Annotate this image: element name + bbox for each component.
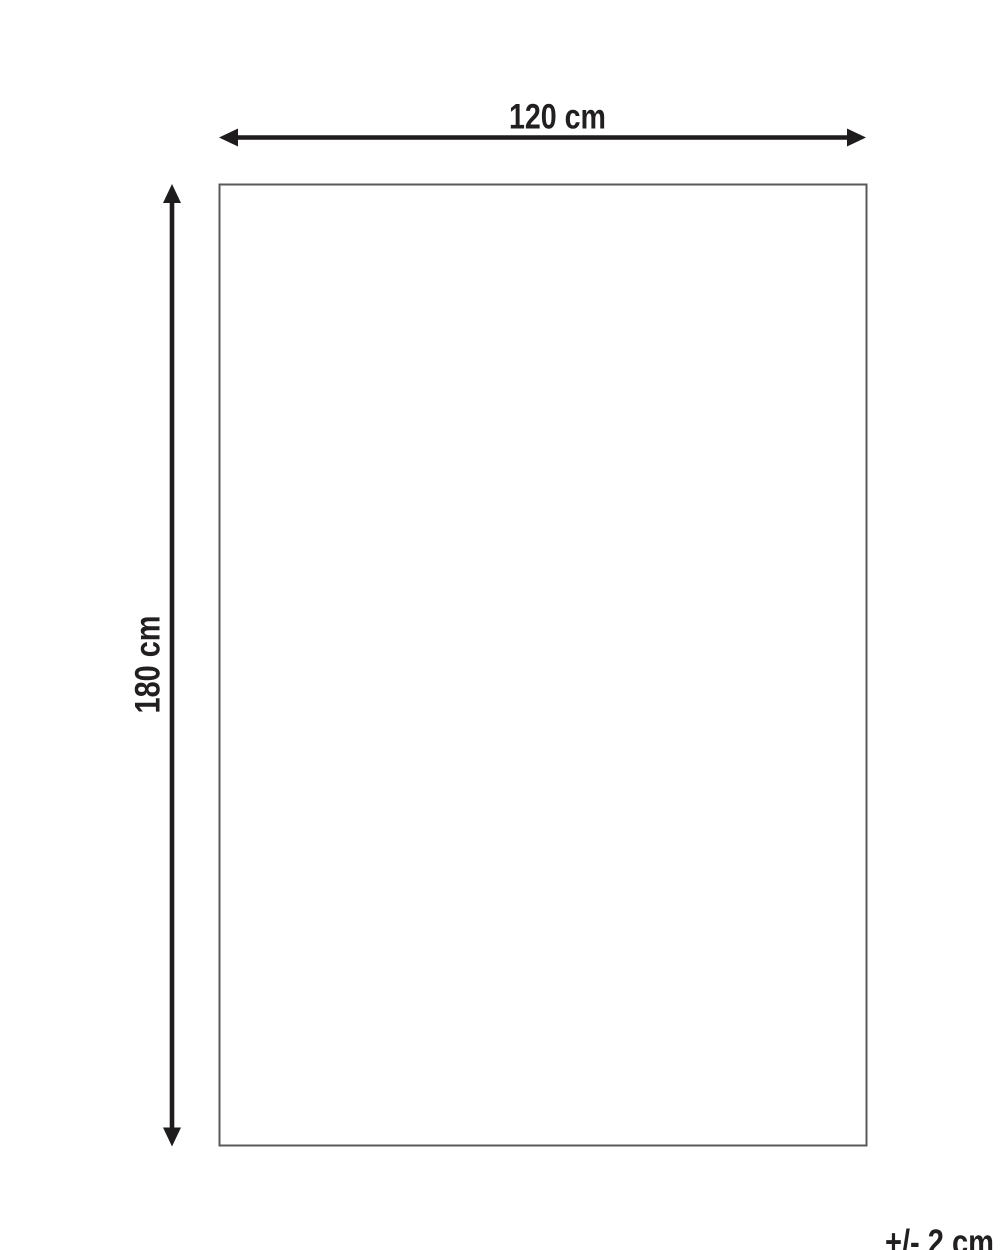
svg-text:120 cm: 120 cm <box>509 98 606 137</box>
svg-text:+/- 2 cm: +/- 2 cm <box>885 1223 994 1250</box>
svg-text:180 cm: 180 cm <box>129 616 168 714</box>
